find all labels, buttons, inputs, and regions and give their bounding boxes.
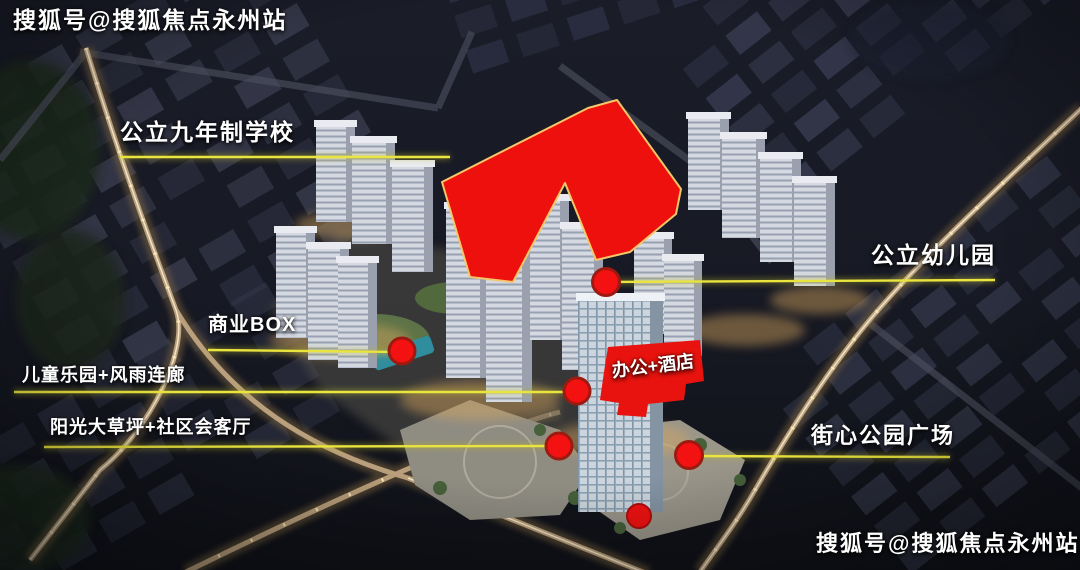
label-lawn-lounge: 阳光大草坪+社区会客厅 (50, 418, 252, 438)
watermark-bottom-right: 搜狐号@搜狐焦点永州站 (816, 532, 1079, 556)
aerial-masterplan-image: 搜狐号@搜狐焦点永州站 公立九年制学校 公立幼儿园 商业BOX 儿童乐园+风雨连… (0, 0, 1080, 570)
vignette (0, 0, 1080, 570)
label-children-corridor: 儿童乐园+风雨连廊 (22, 366, 186, 386)
label-public-kindergarten: 公立幼儿园 (871, 243, 996, 268)
watermark-top-left: 搜狐号@搜狐焦点永州站 (13, 8, 287, 33)
label-commercial-box: 商业BOX (208, 314, 296, 336)
label-public-school: 公立九年制学校 (120, 120, 295, 145)
night-aerial-scene (0, 0, 1080, 570)
label-park-plaza: 街心公园广场 (811, 424, 955, 448)
